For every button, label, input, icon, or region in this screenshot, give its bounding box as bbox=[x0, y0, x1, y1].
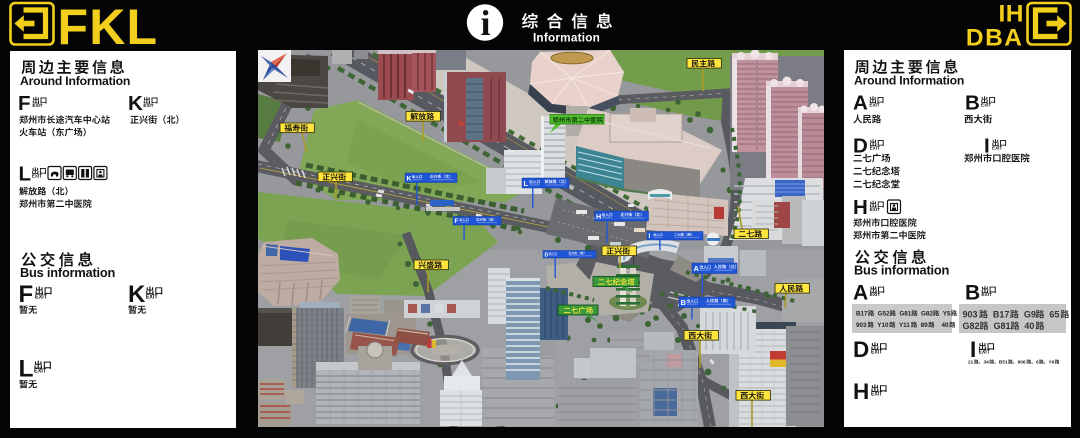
svg-text:EXIT: EXIT bbox=[32, 103, 42, 108]
svg-text:B17: B17 bbox=[856, 311, 868, 318]
svg-text:Around Information: Around Information bbox=[854, 74, 964, 88]
svg-text:DBA: DBA bbox=[966, 24, 1024, 51]
svg-text:G82: G82 bbox=[963, 321, 980, 331]
svg-text:Y10: Y10 bbox=[877, 322, 889, 329]
svg-text:EXIT: EXIT bbox=[870, 145, 880, 150]
svg-text:G52: G52 bbox=[878, 311, 890, 318]
svg-text:H: H bbox=[853, 196, 868, 219]
svg-text:89: 89 bbox=[921, 322, 929, 329]
svg-text:EXIT: EXIT bbox=[35, 294, 48, 300]
svg-text:G9: G9 bbox=[1024, 310, 1036, 320]
svg-text:EXIT: EXIT bbox=[981, 102, 991, 107]
svg-text:EXIT: EXIT bbox=[32, 173, 42, 178]
svg-text:K: K bbox=[407, 175, 412, 182]
svg-text:EXIT: EXIT bbox=[992, 145, 1002, 150]
svg-text:6: 6 bbox=[1036, 360, 1039, 366]
svg-text:40: 40 bbox=[1024, 321, 1034, 331]
svg-text:K: K bbox=[128, 92, 143, 115]
svg-text:D: D bbox=[853, 337, 869, 362]
svg-text:EXIT: EXIT bbox=[870, 207, 880, 212]
svg-text:Bus information: Bus information bbox=[854, 263, 949, 278]
svg-text:EXIT: EXIT bbox=[870, 292, 881, 297]
svg-text:FKL: FKL bbox=[58, 0, 159, 55]
svg-text:EXIT: EXIT bbox=[146, 294, 159, 300]
svg-text:B: B bbox=[681, 298, 687, 307]
svg-text:EXIT: EXIT bbox=[143, 103, 153, 108]
svg-text:Y6: Y6 bbox=[1048, 360, 1054, 366]
svg-text:i: i bbox=[480, 3, 490, 43]
svg-text:40: 40 bbox=[942, 322, 950, 329]
svg-text:EXIT: EXIT bbox=[981, 292, 992, 297]
svg-text:A: A bbox=[853, 92, 868, 115]
svg-text:A: A bbox=[853, 282, 868, 305]
svg-text:G81: G81 bbox=[993, 321, 1010, 331]
svg-text:B17: B17 bbox=[993, 310, 1010, 320]
svg-text:34: 34 bbox=[983, 360, 989, 366]
svg-text:EXIT: EXIT bbox=[869, 102, 879, 107]
svg-text:F: F bbox=[19, 281, 34, 308]
svg-text:L: L bbox=[524, 179, 529, 188]
svg-text:65: 65 bbox=[1049, 310, 1059, 320]
svg-text:Y5: Y5 bbox=[943, 311, 951, 318]
svg-text:H: H bbox=[853, 379, 869, 404]
svg-text:EXIT: EXIT bbox=[34, 369, 47, 375]
svg-text:EXIT: EXIT bbox=[871, 349, 883, 355]
svg-text:D: D bbox=[545, 252, 549, 258]
svg-text:B: B bbox=[965, 282, 980, 305]
svg-text:G82: G82 bbox=[921, 311, 933, 318]
svg-text:F: F bbox=[455, 218, 459, 225]
svg-text:I: I bbox=[970, 337, 976, 362]
svg-text:B51: B51 bbox=[999, 360, 1008, 366]
svg-text:Bus information: Bus information bbox=[20, 265, 115, 280]
svg-text:Information: Information bbox=[533, 31, 600, 45]
svg-text:L: L bbox=[19, 356, 34, 383]
svg-text:903: 903 bbox=[856, 322, 867, 329]
svg-text:EXIT: EXIT bbox=[871, 391, 883, 397]
svg-text:A: A bbox=[694, 264, 700, 273]
svg-text:G81: G81 bbox=[899, 311, 911, 318]
svg-text:21: 21 bbox=[968, 360, 974, 366]
svg-text:F: F bbox=[18, 92, 31, 115]
svg-text:I: I bbox=[649, 233, 651, 240]
svg-text:Around Information: Around Information bbox=[20, 74, 130, 88]
svg-text:906: 906 bbox=[1018, 360, 1026, 366]
svg-text:K: K bbox=[128, 281, 146, 308]
svg-text:903: 903 bbox=[963, 310, 978, 320]
svg-text:B: B bbox=[965, 92, 980, 115]
svg-text:H: H bbox=[596, 212, 601, 221]
svg-text:L: L bbox=[19, 163, 32, 186]
svg-text:EXIT: EXIT bbox=[979, 349, 991, 355]
svg-text:Y11: Y11 bbox=[899, 322, 910, 329]
